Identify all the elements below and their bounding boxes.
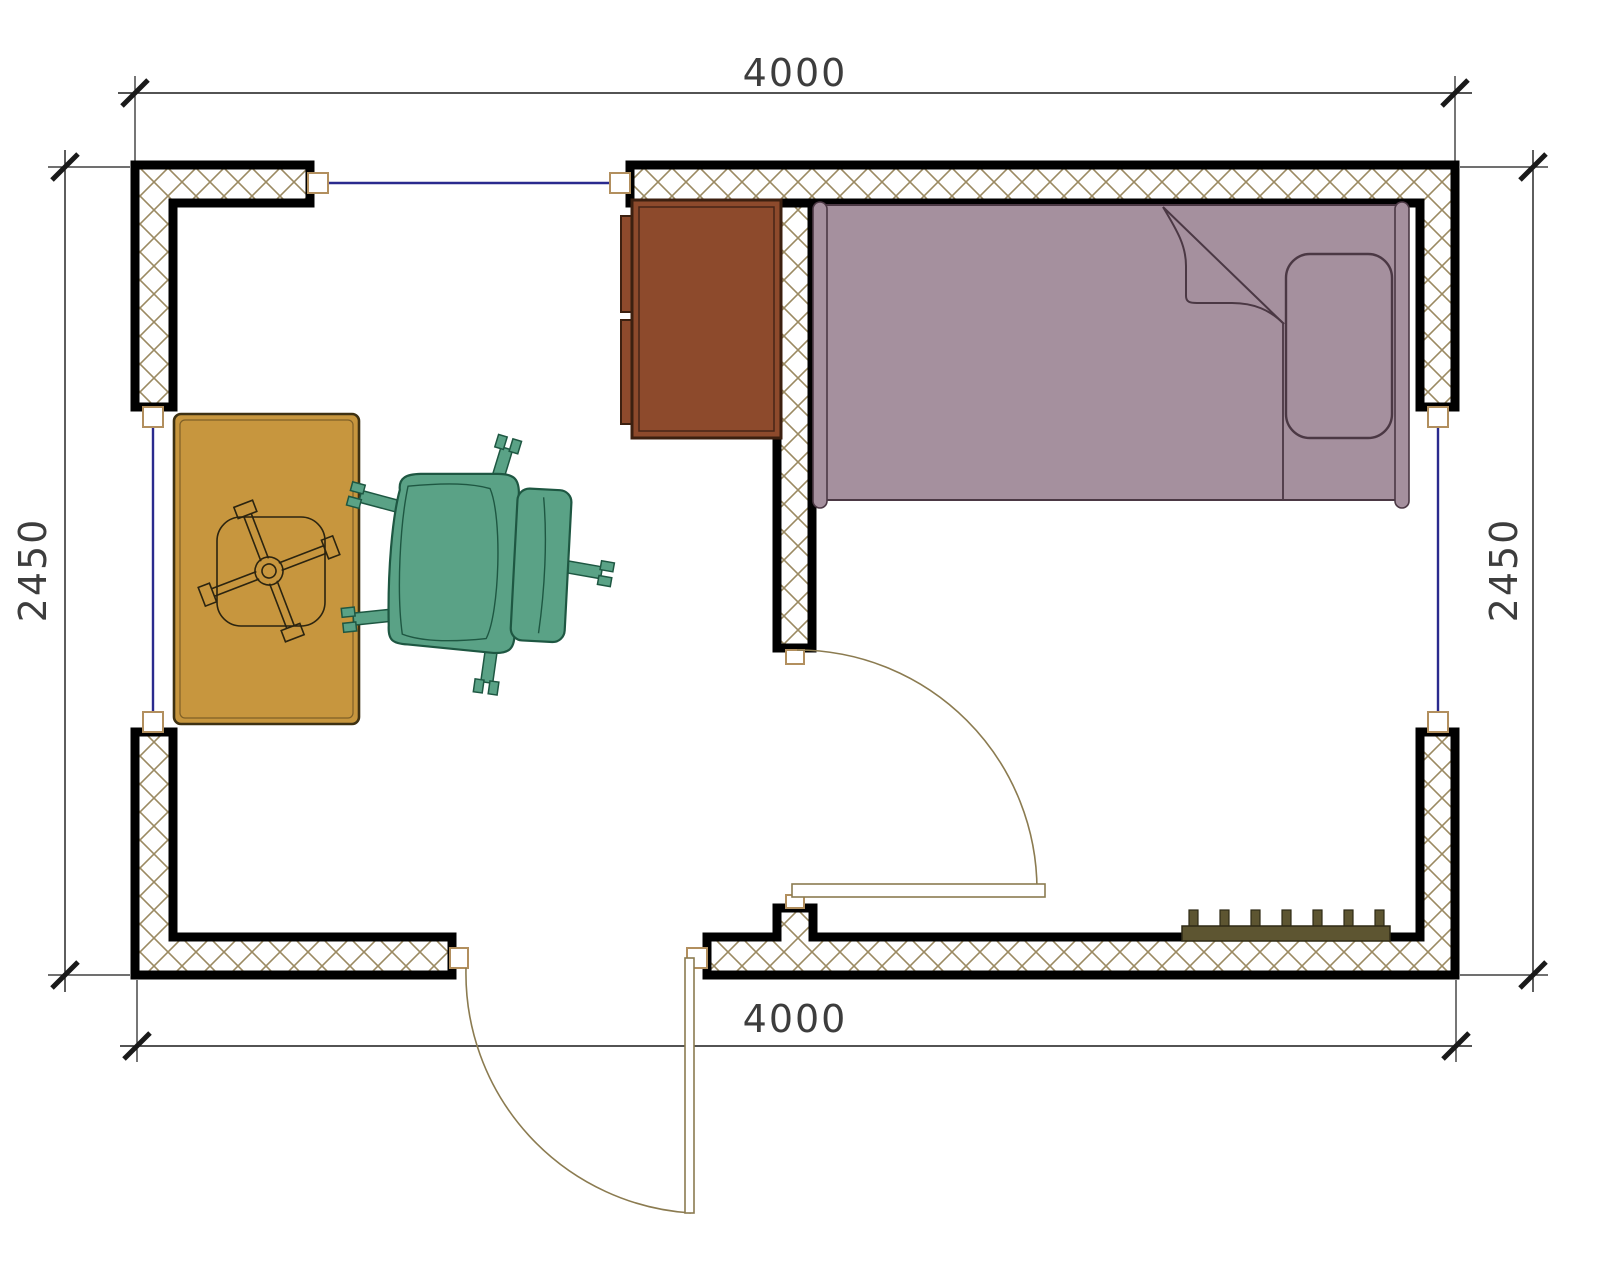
door-leaf [685,958,694,1213]
door-interior [786,650,1045,908]
window-jamb [610,173,630,193]
radiator-fin [1220,910,1229,927]
wall-bottom-left [135,732,452,975]
radiator-fin [1282,910,1291,927]
floor-plan-canvas: 4000 4000 2450 2450 [0,0,1600,1280]
office-chair [337,427,621,701]
window-jamb [143,712,163,732]
window-right [1428,407,1448,732]
table [174,414,362,724]
bed-footboard [813,202,827,508]
bed [813,202,1409,508]
radiator-fin [1344,910,1353,927]
dimension-left: 2450 [11,150,130,992]
table-top [174,414,359,724]
radiator-fin [1375,910,1384,927]
dimension-top: 4000 [118,51,1472,163]
dimension-bottom: 4000 [120,980,1472,1062]
desk-top [632,200,781,438]
dimension-label-left: 2450 [11,518,55,623]
door-leaf [792,884,1045,897]
radiator-fin [1251,910,1260,927]
window-jamb [143,407,163,427]
radiator-fin [1313,910,1322,927]
pillow [1286,254,1392,438]
bed-headboard [1395,202,1409,508]
wall-top-left [135,165,310,407]
dimension-label-right: 2450 [1482,518,1526,623]
door-swing-arc [797,650,1037,890]
chair-caster [562,554,614,586]
dimension-right: 2450 [1460,150,1548,992]
radiator [1182,910,1390,941]
window-jamb [1428,407,1448,427]
floor-plan-svg: 4000 4000 2450 2450 [0,0,1600,1280]
window-top [308,173,630,193]
dimension-label-bottom: 4000 [743,997,848,1041]
door-jamb [786,650,804,664]
door-jamb [450,948,468,968]
desk [621,200,781,438]
dimension-label-top: 4000 [743,51,848,95]
door-exterior [450,948,707,1213]
window-left [143,407,163,732]
radiator-body [1182,926,1390,941]
radiator-fin [1189,910,1198,927]
door-swing-arc [466,968,691,1213]
window-jamb [308,173,328,193]
window-jamb [1428,712,1448,732]
